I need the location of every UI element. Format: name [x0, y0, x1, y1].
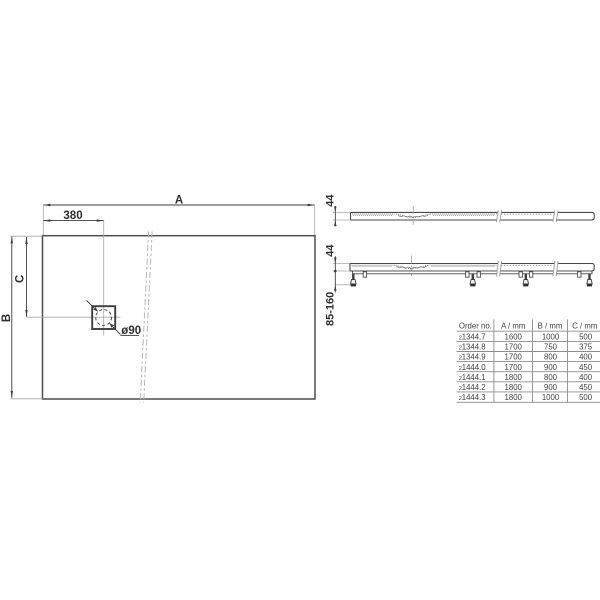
svg-text:380: 380 — [63, 210, 82, 222]
svg-text:21344.7: 21344.7 — [459, 332, 486, 341]
svg-text:375: 375 — [579, 343, 593, 352]
svg-text:1800: 1800 — [505, 393, 523, 402]
svg-text:A / mm: A / mm — [501, 322, 525, 331]
svg-text:C: C — [14, 275, 26, 283]
svg-text:85-160: 85-160 — [325, 292, 337, 326]
svg-text:Order no.: Order no. — [459, 322, 492, 331]
svg-text:1000: 1000 — [542, 332, 560, 341]
svg-text:B: B — [1, 314, 13, 322]
svg-text:44: 44 — [325, 194, 337, 207]
svg-text:21444.0: 21444.0 — [459, 363, 487, 372]
svg-text:1700: 1700 — [505, 343, 523, 352]
svg-text:1700: 1700 — [505, 353, 523, 362]
svg-text:21444.2: 21444.2 — [459, 383, 486, 392]
svg-text:450: 450 — [579, 383, 593, 392]
svg-text:900: 900 — [544, 363, 558, 372]
svg-text:1700: 1700 — [505, 363, 523, 372]
svg-text:400: 400 — [579, 353, 593, 362]
svg-text:750: 750 — [544, 343, 558, 352]
svg-text:450: 450 — [579, 363, 593, 372]
svg-text:500: 500 — [579, 393, 593, 402]
svg-text:1000: 1000 — [542, 393, 560, 402]
svg-text:A: A — [175, 195, 183, 207]
svg-text:1800: 1800 — [505, 373, 523, 382]
svg-text:1800: 1800 — [505, 383, 523, 392]
svg-text:21344.8: 21344.8 — [459, 343, 486, 352]
svg-text:900: 900 — [544, 383, 558, 392]
svg-text:500: 500 — [579, 332, 593, 341]
svg-text:B / mm: B / mm — [538, 322, 563, 331]
svg-text:1600: 1600 — [505, 332, 523, 341]
svg-text:800: 800 — [544, 353, 558, 362]
svg-text:44: 44 — [325, 244, 337, 257]
svg-text:C / mm: C / mm — [572, 322, 597, 331]
svg-text:400: 400 — [579, 373, 593, 382]
svg-text:21344.9: 21344.9 — [459, 353, 486, 362]
svg-text:21444.1: 21444.1 — [459, 373, 486, 382]
svg-text:21444.3: 21444.3 — [459, 393, 486, 402]
svg-text:ø90: ø90 — [121, 325, 141, 337]
svg-text:800: 800 — [544, 373, 558, 382]
